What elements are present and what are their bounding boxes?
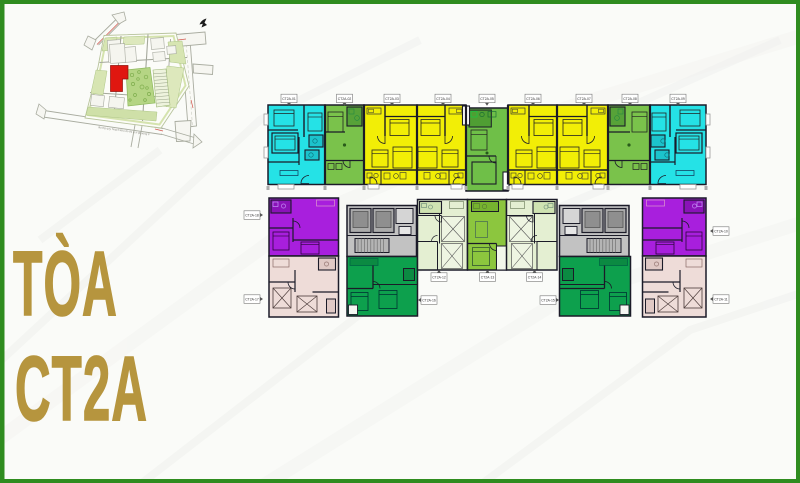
svg-text:CT2A-16: CT2A-16 — [422, 298, 436, 302]
svg-text:CT2A-03: CT2A-03 — [385, 97, 399, 101]
svg-text:CT2A-06: CT2A-06 — [526, 97, 540, 101]
svg-text:CT2A-05: CT2A-05 — [480, 97, 494, 101]
svg-text:CT2A-18: CT2A-18 — [245, 213, 259, 217]
svg-text:CT2A-13: CT2A-13 — [481, 275, 495, 279]
svg-text:CT2A-07: CT2A-07 — [577, 97, 591, 101]
svg-text:CT2A-11: CT2A-11 — [714, 297, 727, 301]
svg-text:CT2A-08: CT2A-08 — [623, 97, 637, 101]
svg-text:CT2A-04: CT2A-04 — [436, 97, 450, 101]
svg-text:CT2A-09: CT2A-09 — [671, 97, 685, 101]
svg-text:CT2A-01: CT2A-01 — [282, 97, 296, 101]
svg-text:CT2A: CT2A — [15, 336, 148, 439]
svg-text:CT2A-15: CT2A-15 — [541, 298, 555, 302]
svg-text:CT2A-12: CT2A-12 — [432, 275, 446, 279]
svg-text:CT2A-10: CT2A-10 — [714, 229, 728, 233]
svg-text:CT2A-02: CT2A-02 — [338, 97, 352, 101]
svg-text:CT2A-17: CT2A-17 — [245, 297, 259, 301]
svg-text:TÒA: TÒA — [13, 232, 118, 335]
svg-text:CT2A-14: CT2A-14 — [528, 275, 542, 279]
